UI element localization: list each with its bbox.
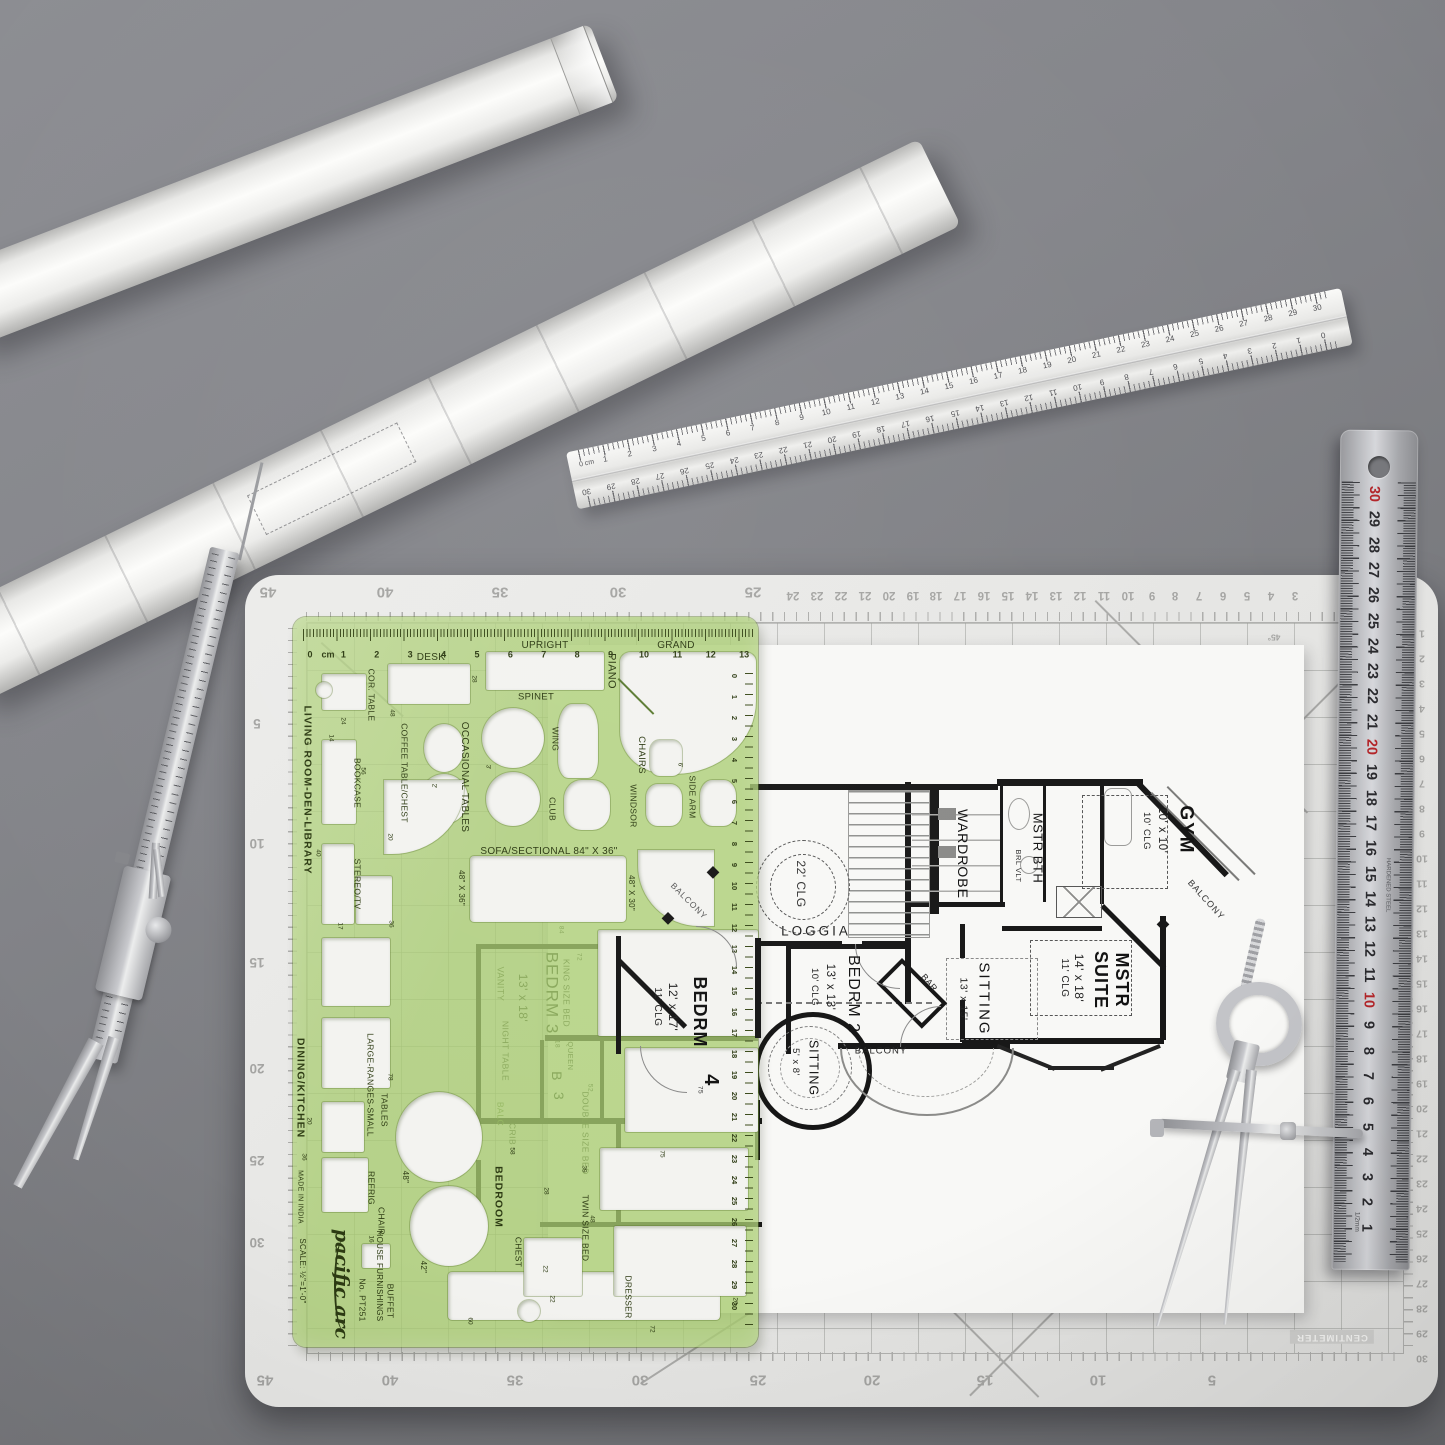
plan-wall: [616, 936, 621, 1054]
steel-number: 21: [1364, 713, 1379, 729]
plan-door-arc: [640, 1046, 687, 1093]
steel-number: 25: [1365, 612, 1380, 628]
plan-door-arc: [696, 926, 737, 967]
plan-room-label: 11' CLG: [652, 987, 662, 1026]
drafting-desk-scene: 0 cm123456789101112131415161718192021222…: [0, 0, 1445, 1445]
plan-room-label: BEDRM: [691, 977, 709, 1048]
plan-room-label: 75: [696, 1086, 703, 1094]
steel-number: 24: [1365, 638, 1380, 654]
caliper-lock-screw: [114, 851, 130, 865]
plan-marker-diamond: [662, 912, 675, 925]
compass-crossbar-knob: [1150, 1119, 1164, 1137]
steel-number: 20: [1364, 739, 1379, 755]
plan-wall: [755, 938, 761, 1038]
steel-number: 22: [1364, 688, 1379, 704]
compass-crossbar: [1158, 1119, 1363, 1139]
steel-number: 29: [1366, 511, 1381, 527]
plan-marker-diamond: [707, 866, 720, 879]
drawing-compass: [1130, 900, 1390, 1380]
steel-number: 30: [1366, 486, 1381, 502]
steel-number: 18: [1363, 789, 1378, 805]
steel-number: 27: [1366, 562, 1381, 578]
steel-number: 23: [1365, 663, 1380, 679]
steel-number: 26: [1365, 587, 1380, 603]
caliper-depth-rod: [238, 462, 263, 560]
compass-adjuster-nut: [1280, 1122, 1296, 1140]
steel-number: 16: [1363, 840, 1378, 856]
plan-room-label: 4: [701, 1074, 721, 1086]
compass-bow-ring: [1208, 973, 1311, 1074]
plan-room-label: 12' x 17': [667, 983, 679, 1031]
plan-room-label: BALCONY: [669, 881, 709, 921]
compass-handle: [1240, 918, 1266, 990]
caliper-beam: [88, 546, 240, 1063]
steel-number: 17: [1363, 815, 1378, 831]
steel-number: 15: [1362, 865, 1377, 881]
vernier-caliper: [60, 450, 340, 1270]
steel-number: 19: [1363, 764, 1378, 780]
steel-number: 28: [1366, 536, 1381, 552]
